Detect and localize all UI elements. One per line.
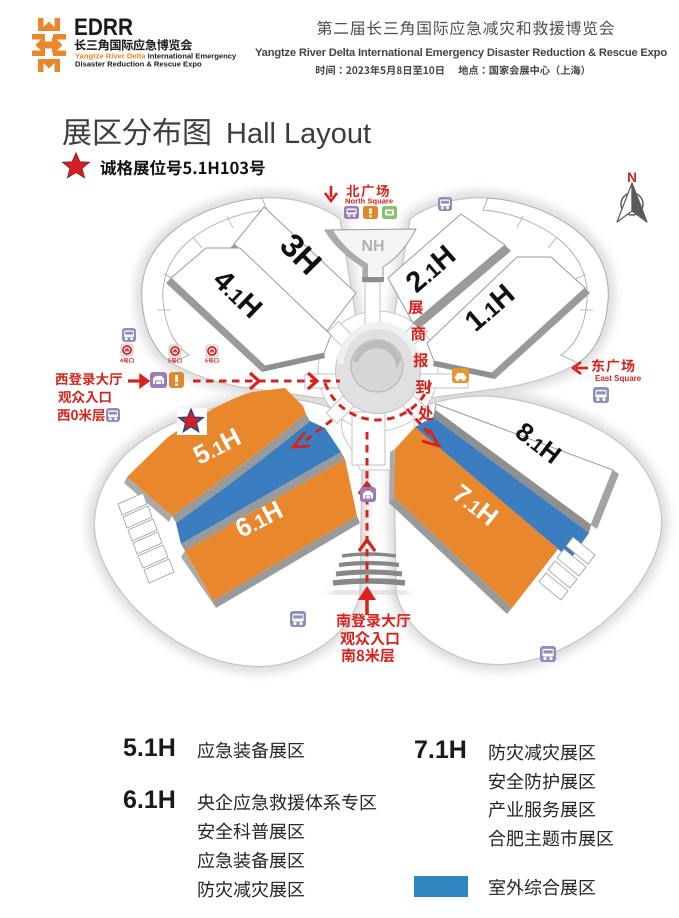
svg-text:7.1H: 7.1H (414, 736, 467, 764)
svg-text:EDRR: EDRR (74, 14, 133, 41)
svg-text:NH: NH (361, 238, 384, 255)
svg-text:East Square: East Square (595, 374, 642, 383)
svg-text:5.1H: 5.1H (123, 734, 176, 762)
svg-text:Hall Layout: Hall Layout (226, 118, 371, 150)
svg-text:Yangtze River Delta Internatio: Yangtze River Delta International Emerge… (255, 47, 667, 59)
svg-text:6.1H: 6.1H (123, 786, 176, 814)
svg-text:North Square: North Square (345, 197, 393, 206)
svg-text:Disaster Reduction & Rescue Ex: Disaster Reduction & Rescue Expo (75, 60, 202, 69)
